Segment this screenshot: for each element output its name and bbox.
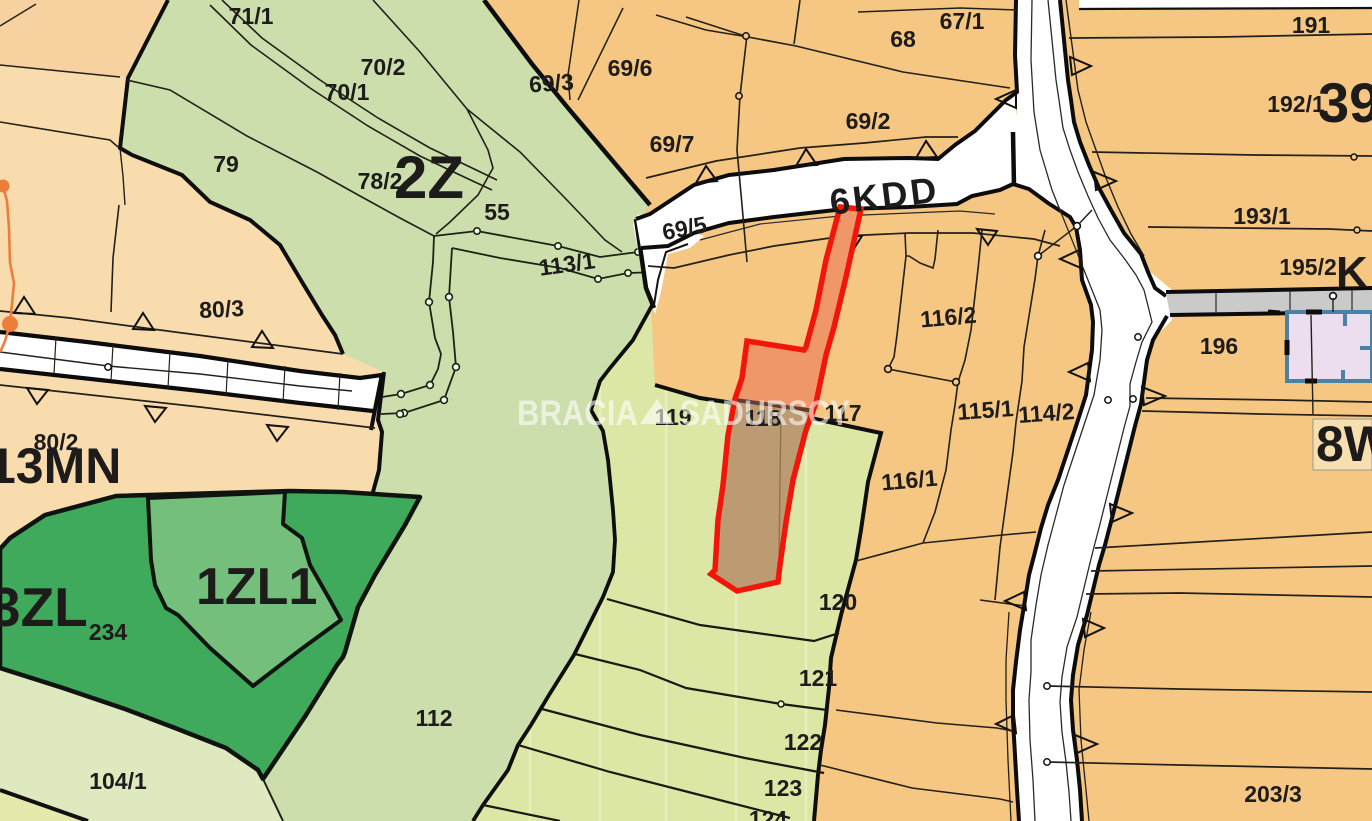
svg-text:114/2: 114/2: [1017, 398, 1075, 428]
svg-text:71/1: 71/1: [229, 3, 274, 29]
svg-text:67/1: 67/1: [940, 8, 985, 34]
svg-text:191: 191: [1292, 12, 1331, 38]
svg-text:123: 123: [764, 775, 802, 801]
svg-text:192/1: 192/1: [1267, 91, 1325, 117]
svg-text:234: 234: [89, 619, 128, 645]
svg-text:193/1: 193/1: [1233, 203, 1291, 229]
svg-text:112: 112: [415, 705, 452, 731]
svg-text:69/2: 69/2: [846, 108, 891, 134]
svg-text:70/2: 70/2: [361, 54, 406, 80]
svg-text:116/1: 116/1: [880, 465, 939, 496]
svg-text:79: 79: [213, 151, 239, 177]
svg-text:124: 124: [749, 806, 788, 821]
svg-text:55: 55: [484, 199, 510, 225]
svg-text:122: 122: [784, 729, 822, 755]
svg-text:1ZL1: 1ZL1: [196, 558, 317, 616]
svg-text:203/3: 203/3: [1244, 781, 1302, 807]
svg-text:8W: 8W: [1316, 416, 1372, 472]
svg-text:BRACIA: BRACIA: [517, 394, 638, 433]
svg-text:3ZL: 3ZL: [0, 576, 88, 638]
svg-text:104/1: 104/1: [89, 768, 147, 794]
svg-text:13MN: 13MN: [0, 438, 121, 494]
svg-text:120: 120: [819, 589, 857, 615]
svg-text:78/2: 78/2: [358, 168, 403, 194]
svg-text:70/1: 70/1: [325, 79, 370, 105]
svg-text:80/3: 80/3: [199, 295, 245, 323]
svg-text:SADURSCY: SADURSCY: [680, 394, 850, 433]
svg-text:195/2: 195/2: [1279, 254, 1337, 280]
svg-text:69/6: 69/6: [608, 55, 653, 81]
svg-text:196: 196: [1200, 333, 1238, 359]
svg-text:115/1: 115/1: [956, 395, 1014, 425]
svg-text:116/2: 116/2: [919, 302, 977, 333]
svg-text:39: 39: [1318, 71, 1372, 134]
svg-text:121: 121: [799, 665, 838, 691]
svg-text:69/3: 69/3: [528, 68, 574, 97]
svg-text:2Z: 2Z: [394, 144, 464, 211]
svg-text:69/7: 69/7: [650, 131, 695, 157]
svg-text:68: 68: [890, 26, 916, 52]
svg-text:K: K: [1336, 248, 1368, 297]
